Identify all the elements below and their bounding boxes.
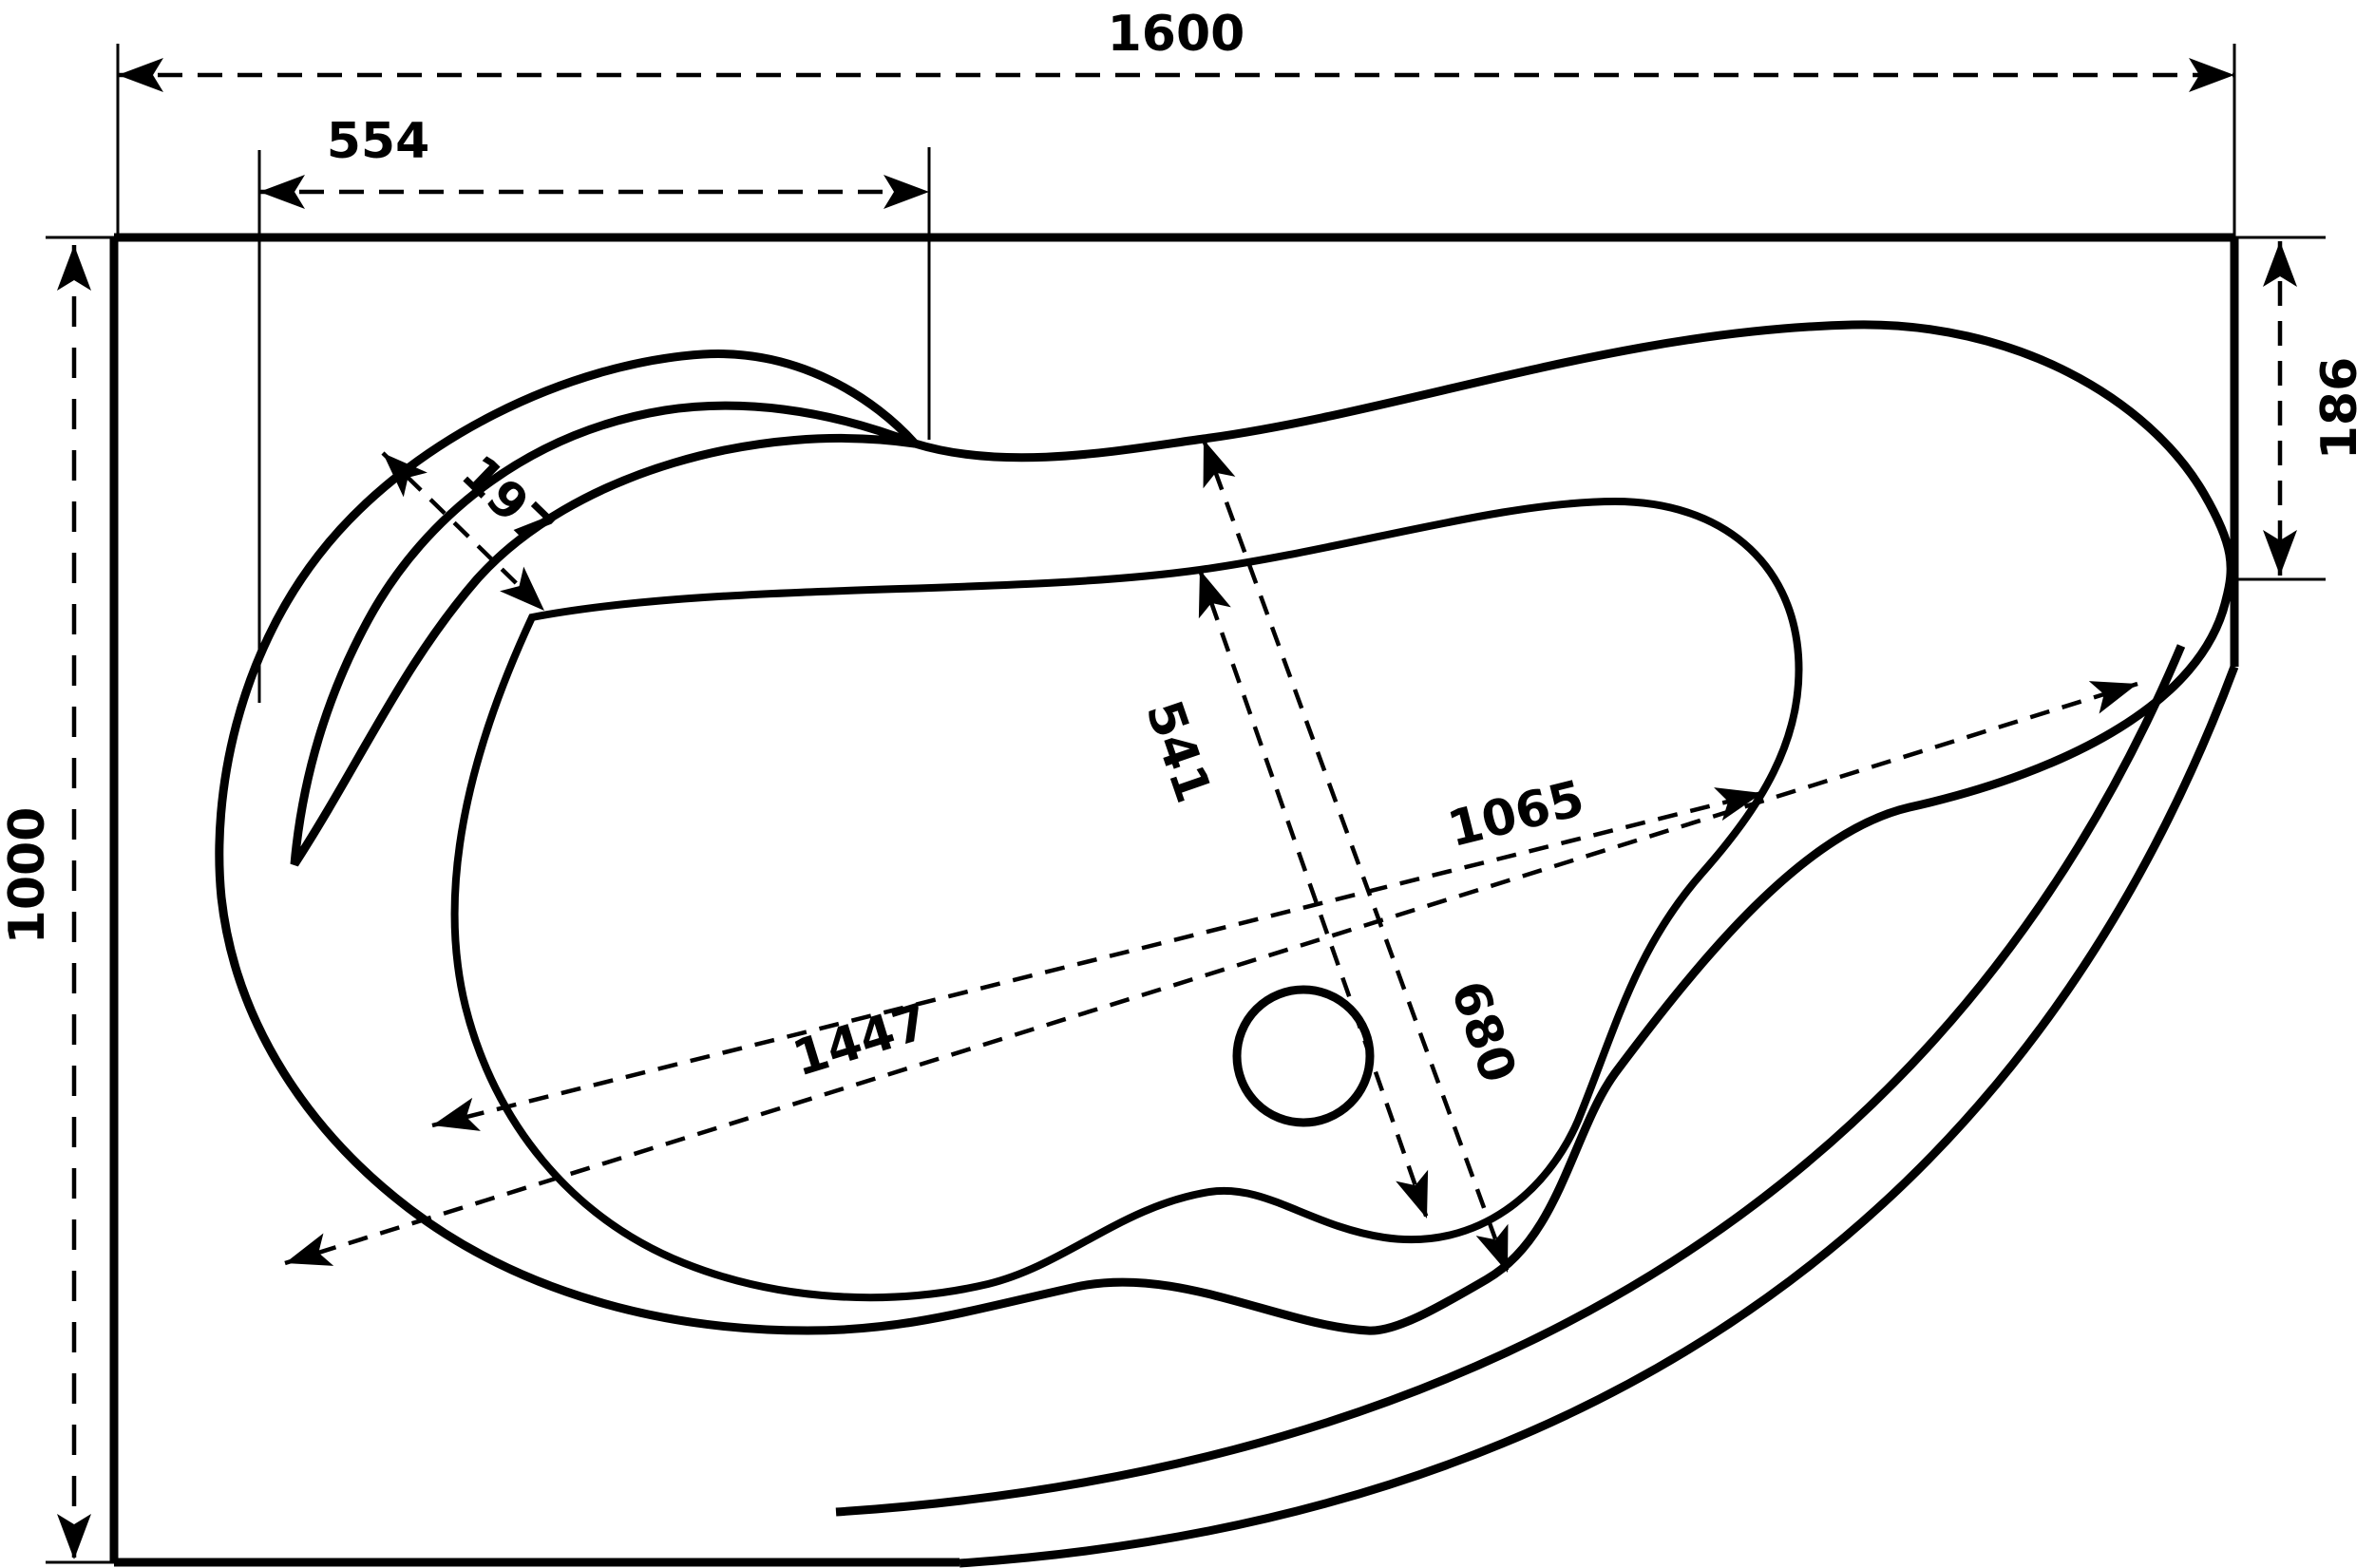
apron-outer-curve xyxy=(959,667,2234,1563)
dim-1000: 1000 xyxy=(0,237,114,1562)
enclosure-frame xyxy=(114,237,2234,1563)
basin-outline xyxy=(455,501,1799,1297)
dim-1600-label: 1600 xyxy=(1108,6,1245,63)
headrest-crescent xyxy=(294,406,915,864)
dim-554-label: 554 xyxy=(327,113,430,170)
dim-186: 186 xyxy=(2234,237,2368,579)
dim-1065-label: 1065 xyxy=(1442,770,1589,859)
apron-inner-line xyxy=(836,646,2181,1512)
dim-1065-line xyxy=(432,793,1762,1125)
dim-1600: 1600 xyxy=(118,6,2234,237)
technical-drawing: 1600 554 1000 186 197 541 680 1065 xyxy=(0,0,2375,1568)
dim-541-label: 541 xyxy=(1134,693,1222,809)
dim-197-label: 197 xyxy=(450,444,564,557)
dim-680-label: 680 xyxy=(1439,973,1527,1089)
dim-186-label: 186 xyxy=(2311,357,2368,461)
dim-1065: 1065 xyxy=(432,770,1762,1125)
dim-1447-label: 1447 xyxy=(787,993,935,1088)
dim-1000-label: 1000 xyxy=(0,807,56,945)
bathtub-dimension-drawing: 1600 554 1000 186 197 541 680 1065 xyxy=(0,0,2375,1568)
dim-554: 554 xyxy=(259,113,929,703)
drain-circle xyxy=(1237,990,1370,1123)
